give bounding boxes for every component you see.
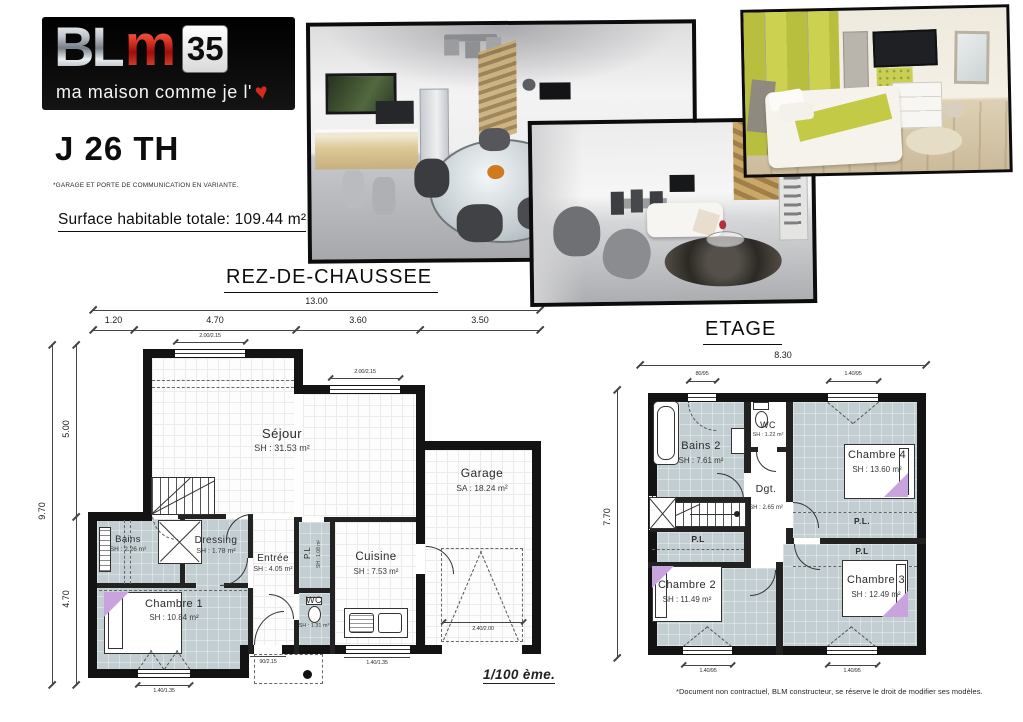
dashed-beam-line: [152, 380, 294, 381]
wall-segment: [190, 669, 249, 678]
dim-line: [330, 378, 400, 379]
dim-line: [93, 310, 540, 311]
wall-tv: [872, 29, 938, 68]
floor-sejour: [303, 394, 416, 517]
surface-total: Surface habitable totale: 109.44 m²: [58, 211, 306, 232]
partition: [324, 517, 416, 522]
wall-segment: [917, 393, 926, 655]
wall-mirror: [954, 30, 990, 83]
partition: [786, 402, 793, 502]
partition: [248, 588, 253, 654]
room-area-wc2: SH : 1.22 m²: [744, 432, 792, 438]
partition: [776, 562, 783, 655]
dim-tick: [48, 681, 56, 689]
room-area-placard: SH : 1.08 m²: [316, 524, 322, 584]
win-dim-label: 1.40/1.35: [338, 660, 416, 666]
win-dim-label: 80/95: [674, 371, 730, 377]
room-name-entree: Entrée: [247, 553, 299, 564]
bar-stool: [372, 177, 395, 214]
room-area-dressing: SH : 1.78 m²: [184, 548, 248, 555]
room-name-chambre2: Chambre 2: [645, 579, 729, 591]
model-title: J 26 TH: [55, 130, 179, 168]
dashed-closet-line: [652, 549, 744, 550]
wall-segment: [416, 385, 425, 449]
dashed-beam-line: [152, 387, 294, 388]
dim-line: [688, 381, 716, 382]
dim-line: [617, 390, 618, 658]
label-pl-right-bottom: P.L: [842, 546, 882, 556]
dim-tick: [874, 662, 880, 668]
fruit-bowl: [487, 165, 504, 179]
dim-label-seg1: 1.20: [93, 315, 134, 325]
room-name-wc2: WC: [748, 420, 788, 430]
win-dim-label: 1.40/1.35: [130, 688, 198, 694]
dim-label-etage-height: 7.70: [602, 497, 612, 537]
room-name-placard: P.L: [303, 530, 312, 576]
win-dim-label: 90/2.15: [235, 659, 301, 665]
wall-segment: [716, 393, 828, 402]
dim-line: [93, 330, 540, 331]
dining-chair: [611, 191, 624, 214]
logo-tagline-text: ma maison comme je l': [56, 82, 252, 103]
window-symbol: [683, 646, 732, 655]
partition: [777, 447, 793, 452]
dim-label-seg3: 3.60: [296, 315, 420, 325]
room-area-bains2: SH : 7.61 m²: [662, 456, 740, 465]
logo-m-text: m: [125, 19, 177, 73]
dim-label-total-width: 13.00: [93, 296, 540, 306]
window-symbol: [688, 393, 716, 402]
room-area-entree: SH : 4.05 m²: [243, 566, 303, 573]
label-pl-right-top: P.L.: [842, 516, 882, 526]
dim-line: [344, 657, 410, 658]
room-name-chambre4: Chambre 4: [838, 449, 916, 461]
room-area-wc: SH : 1.31 m²: [291, 623, 337, 629]
room-name-dressing: Dressing: [182, 535, 250, 546]
partition: [294, 517, 302, 522]
dim-tick: [922, 361, 930, 369]
sink-basin: [378, 613, 402, 633]
dim-line: [828, 381, 878, 382]
dim-label-seg4: 3.50: [420, 315, 540, 325]
dim-line: [137, 685, 190, 686]
room-area-garage: SA : 18.24 m²: [436, 483, 528, 493]
wall-segment: [532, 441, 541, 654]
window-symbol: [346, 645, 410, 654]
logo-tagline: ma maison comme je l' ♥: [42, 79, 295, 105]
window-symbol: [827, 646, 877, 655]
room-name-bains2: Bains 2: [662, 440, 740, 452]
room-name-cuisine: Cuisine: [338, 551, 414, 563]
room-name-chambre3: Chambre 3: [836, 574, 916, 586]
sink-basin: [349, 613, 374, 633]
partition: [330, 517, 335, 654]
dim-line: [683, 665, 732, 666]
dining-chair: [414, 158, 449, 198]
dim-label-seg2: 4.70: [134, 315, 296, 325]
dim-tick: [72, 681, 80, 689]
blm-logo: BL m 35 ma maison comme je l' ♥: [42, 17, 295, 110]
stair-arrow-line: [690, 514, 736, 515]
room-area-chambre4: SH : 13.60 m²: [842, 465, 912, 474]
partition: [294, 588, 335, 593]
toilet-tank: [753, 402, 769, 410]
fridge: [419, 88, 448, 162]
wall-segment: [88, 512, 97, 678]
window-symbol: [138, 669, 190, 678]
dim-line: [250, 656, 286, 657]
wall-segment: [416, 574, 425, 654]
wall-segment: [416, 441, 541, 450]
room-name-chambre1: Chambre 1: [126, 598, 222, 610]
wall-segment: [877, 646, 926, 655]
win-dim-label: 2.00/2.15: [323, 369, 407, 375]
wall-segment: [522, 645, 541, 654]
room-name-wc: WC: [299, 595, 329, 605]
dim-tick: [242, 339, 248, 345]
dining-chair: [457, 204, 503, 242]
toilet-bowl: [308, 606, 321, 623]
room-area-chambre2: SH : 11.49 m²: [648, 595, 726, 604]
room-area-bains: SH : 2.26 m²: [97, 546, 159, 553]
wall-tv: [669, 174, 694, 192]
dining-chair: [630, 189, 643, 212]
egg-chair: [552, 206, 600, 256]
scale-note: 1/100 ème.: [483, 667, 555, 684]
dim-line: [52, 345, 53, 685]
lamp-shade: [444, 39, 459, 55]
dim-tick: [187, 682, 193, 688]
win-dim-label: 1.40/95: [676, 668, 740, 674]
dim-tick: [875, 378, 881, 384]
room-name-dgt: Dgt.: [746, 483, 786, 495]
logo-bl-text: BL: [54, 19, 123, 75]
stair-arrow-dot: [734, 511, 740, 517]
room-area-chambre1: SH : 10.84 m²: [130, 613, 218, 622]
win-dim-label: 2.00/2.15: [168, 333, 252, 339]
dashed-closet-line: [99, 590, 247, 591]
dim-line: [175, 342, 245, 343]
bed-accent-purple: [884, 473, 908, 497]
partition: [786, 538, 794, 544]
flower-vase: [719, 220, 726, 229]
variant-note: *GARAGE ET PORTE DE COMMUNICATION EN VAR…: [53, 182, 239, 189]
room-area-dgt: SH : 2.65 m²: [740, 505, 792, 511]
dim-label-total-height: 9.70: [37, 491, 47, 531]
win-dim-label: 1.40/95: [818, 371, 888, 377]
room-name-bains: Bains: [99, 534, 157, 545]
label-pl-left: P.L: [678, 534, 718, 544]
wall-segment: [416, 449, 425, 544]
wall-tv: [540, 83, 571, 100]
room-area-cuisine: SH : 7.53 m²: [341, 567, 411, 576]
dim-line: [827, 665, 877, 666]
partition: [786, 528, 793, 538]
wall-segment: [282, 645, 346, 654]
room-area-chambre3: SH : 12.49 m²: [840, 590, 912, 599]
document-page: BL m 35 ma maison comme je l' ♥ J 26 TH …: [0, 0, 1023, 722]
shelf-decor: [784, 171, 801, 225]
etage-title: ETAGE: [703, 318, 782, 345]
dim-label-hseg2: 4.70: [61, 579, 71, 619]
logo-35-badge: 35: [182, 25, 228, 73]
dim-tick: [536, 326, 544, 334]
bar-stool: [342, 171, 365, 208]
porch-post: [303, 670, 312, 679]
dim-line: [443, 622, 523, 623]
dim-tick: [397, 375, 403, 381]
dark-appliance: [376, 100, 414, 124]
logo-wordmark: BL m 35: [42, 17, 295, 79]
win-dim-label: 1.40/95: [820, 668, 884, 674]
window-symbol: [828, 393, 878, 402]
dim-tick: [613, 654, 621, 662]
kitchen-counter: [315, 128, 418, 169]
photo-bedroom: [740, 4, 1012, 178]
pouf: [945, 102, 964, 117]
dim-tick: [713, 378, 719, 384]
room-area-sejour: SH : 31.53 m²: [229, 443, 335, 453]
partition: [820, 538, 926, 544]
wall-segment: [648, 646, 683, 655]
rdc-title: REZ-DE-CHAUSSEE: [224, 266, 438, 293]
dim-label-etage-width: 8.30: [640, 350, 926, 360]
room-name-sejour: Séjour: [227, 426, 337, 441]
window-symbol: [330, 385, 400, 394]
wall-segment: [410, 645, 417, 654]
room-name-garage: Garage: [438, 466, 526, 480]
win-dim-label: 2.40/2.00: [433, 626, 533, 632]
dim-tick: [729, 662, 735, 668]
heart-icon: ♥: [253, 78, 271, 106]
window-symbol: [175, 349, 245, 358]
partition: [744, 532, 751, 562]
dim-line: [640, 365, 926, 366]
partition: [97, 583, 196, 588]
wall-clock: [522, 78, 535, 91]
disclaimer-text: *Document non contractuel, BLM construct…: [676, 687, 1020, 696]
dim-label-hseg1: 5.00: [61, 409, 71, 449]
wall-segment: [88, 512, 152, 521]
dining-chair: [479, 127, 510, 151]
